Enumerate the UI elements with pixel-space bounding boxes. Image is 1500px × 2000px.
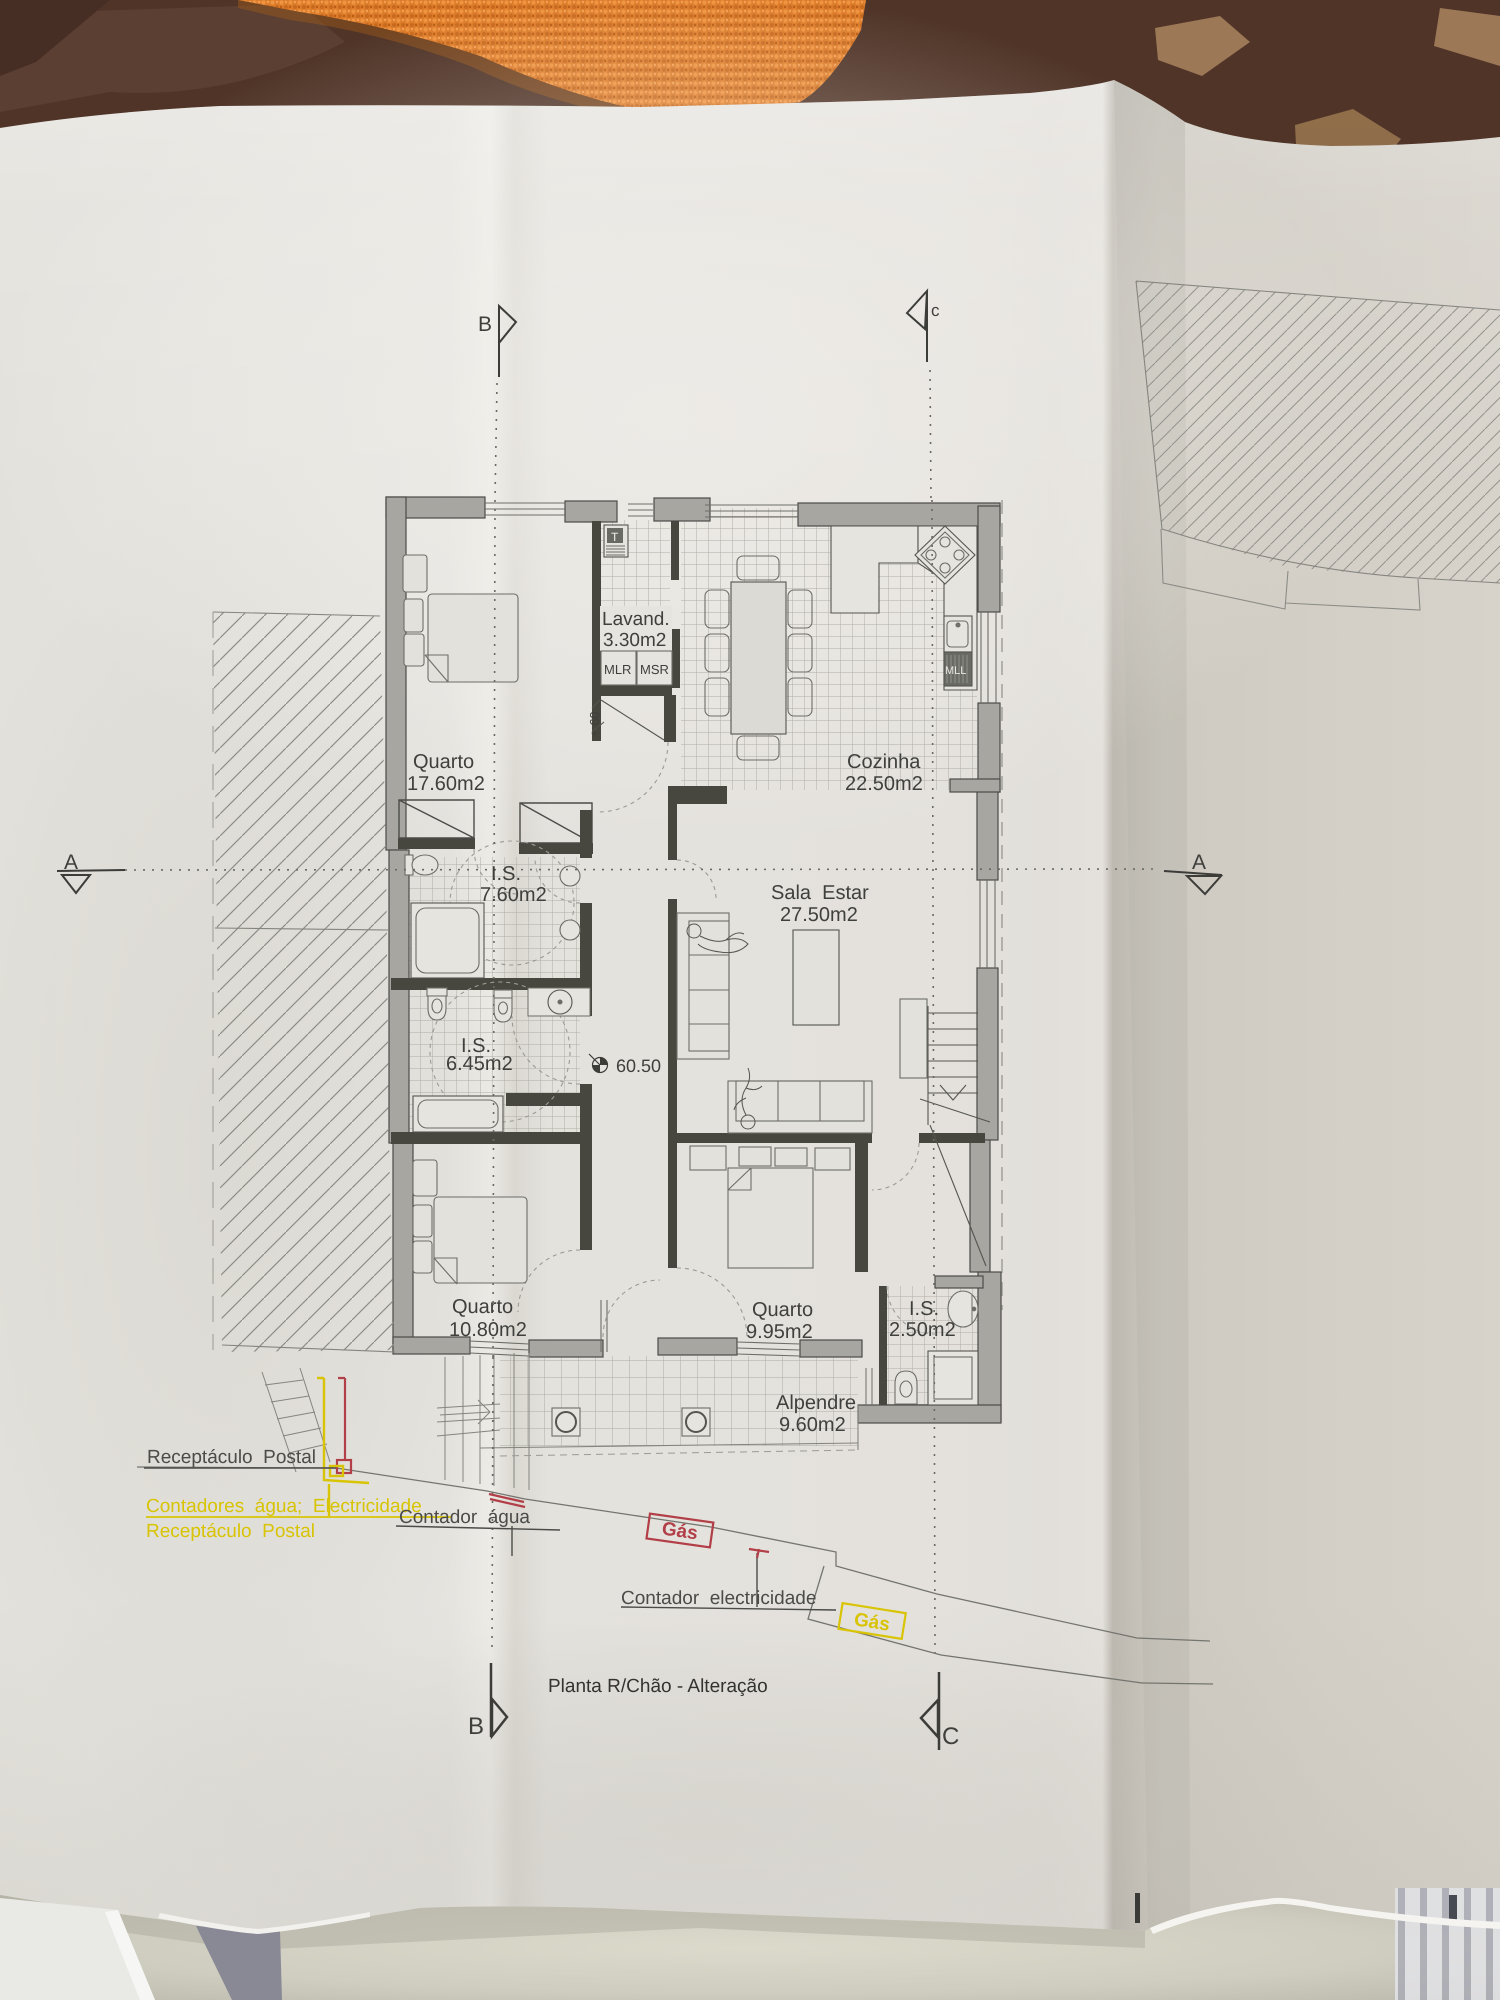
svg-text:I.S.: I.S. <box>491 863 521 885</box>
svg-text:C: C <box>942 1723 959 1750</box>
svg-text:+.60: +.60 <box>587 711 602 737</box>
svg-text:Contador água: Contador água <box>399 1507 530 1528</box>
svg-text:Lavand.: Lavand. <box>602 609 670 630</box>
svg-text:2.50m2: 2.50m2 <box>889 1319 956 1341</box>
svg-text:Quarto: Quarto <box>752 1299 813 1321</box>
svg-text:I.S.: I.S. <box>909 1298 939 1320</box>
svg-text:Alpendre: Alpendre <box>776 1392 856 1414</box>
svg-text:T: T <box>611 530 619 544</box>
svg-text:MLL: MLL <box>945 665 966 677</box>
svg-text:Receptáculo Postal: Receptáculo Postal <box>147 1447 316 1468</box>
svg-text:6.45m2: 6.45m2 <box>446 1053 513 1075</box>
svg-text:MLR: MLR <box>604 662 631 677</box>
svg-text:9.95m2: 9.95m2 <box>746 1321 813 1343</box>
svg-text:Contador electricidade: Contador electricidade <box>621 1588 816 1609</box>
svg-text:Planta R/Chão - Alteração: Planta R/Chão - Alteração <box>548 1676 768 1697</box>
svg-text:3.30m2: 3.30m2 <box>603 630 666 651</box>
svg-text:Cozinha: Cozinha <box>847 751 921 773</box>
svg-text:9.60m2: 9.60m2 <box>779 1414 846 1436</box>
svg-text:A: A <box>64 851 78 874</box>
svg-text:10.80m2: 10.80m2 <box>449 1319 527 1341</box>
svg-text:MSR: MSR <box>640 662 669 677</box>
svg-text:Quarto: Quarto <box>452 1296 513 1318</box>
svg-text:17.60m2: 17.60m2 <box>407 773 485 795</box>
svg-text:Receptáculo Postal: Receptáculo Postal <box>146 1521 315 1542</box>
svg-text:Contadores água; Electricida: Contadores água; Electricidade <box>146 1496 422 1517</box>
svg-text:Sala Estar: Sala Estar <box>771 882 869 904</box>
svg-text:B: B <box>478 313 492 336</box>
svg-text:22.50m2: 22.50m2 <box>845 773 923 795</box>
svg-text:A: A <box>1192 851 1206 874</box>
svg-text:7.60m2: 7.60m2 <box>480 884 547 906</box>
svg-text:Quarto: Quarto <box>413 751 474 773</box>
svg-text:B: B <box>468 1713 484 1740</box>
svg-text:60.50: 60.50 <box>616 1056 661 1076</box>
svg-text:27.50m2: 27.50m2 <box>780 904 858 926</box>
svg-text:c: c <box>931 301 940 320</box>
